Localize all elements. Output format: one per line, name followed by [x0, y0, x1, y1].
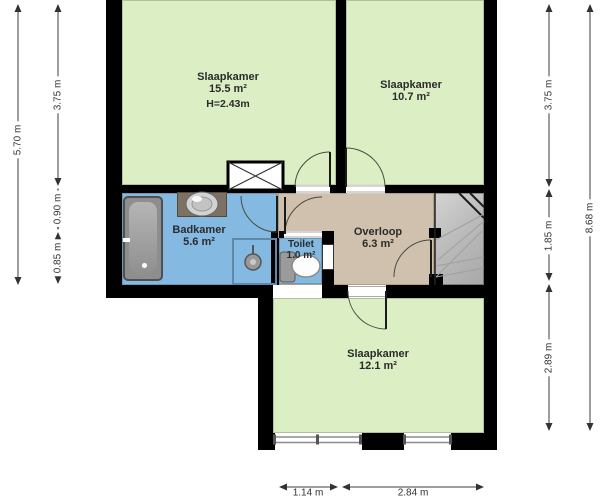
room-name: Toilet	[287, 239, 316, 250]
room-area: 12.1 m²	[347, 360, 409, 372]
shower-tray-icon	[232, 238, 277, 285]
room-area: 15.5 m²	[197, 83, 259, 95]
dim-label-bottom-2: 2.84 m	[395, 488, 432, 499]
room-label-slaapkamer-2: Slaapkamer 10.7 m²	[380, 79, 442, 103]
room-name: Badkamer	[172, 224, 225, 236]
wall-toilet-right-top	[322, 231, 334, 244]
wall-exterior-left	[106, 0, 122, 298]
wall-stair-stub-top	[429, 228, 441, 238]
dim-label-right-2: 1.85 m	[544, 218, 555, 255]
wall-bottom-pier	[362, 433, 404, 450]
room-label-toilet: Toilet 1.0 m²	[287, 239, 316, 261]
room-name: Slaapkamer	[347, 348, 409, 360]
wall-bottom-corner-left	[258, 433, 275, 450]
bathtub-faucet-icon	[123, 238, 130, 242]
room-name: Slaapkamer	[380, 79, 442, 91]
dim-label-right-3: 2.89 m	[544, 340, 555, 377]
room-area: 5.6 m²	[172, 236, 225, 248]
wall-bedroom-divider	[336, 0, 346, 185]
room-label-slaapkamer-1: Slaapkamer 15.5 m²	[197, 71, 259, 95]
toilet-niche	[322, 244, 334, 270]
room-area: 10.7 m²	[380, 91, 442, 103]
bathtub-drain-icon	[141, 262, 148, 269]
wall-hall-mid	[330, 185, 346, 193]
dim-label-right-1: 3.75 m	[544, 77, 555, 114]
staircase	[434, 193, 484, 285]
wall-bottom-corner-right	[451, 433, 497, 450]
wall-toilet-right-bottom	[322, 270, 334, 285]
room-area: 6.3 m²	[354, 238, 402, 250]
floor-plan: Slaapkamer 15.5 m² H=2.43m Slaapkamer 10…	[0, 0, 608, 500]
room-label-slaapkamer-3: Slaapkamer 12.1 m²	[347, 348, 409, 372]
dim-label-left-1: 3.75 m	[53, 77, 64, 114]
wall-bathroom-bottom	[106, 285, 273, 298]
room-label-badkamer: Badkamer 5.6 m²	[172, 224, 225, 248]
room-name: Slaapkamer	[197, 71, 259, 83]
room-height-note: H=2.43m	[206, 98, 250, 110]
dim-label-left-2: 0.90 m	[53, 191, 64, 228]
room-area: 1.0 m²	[287, 250, 316, 261]
dim-label-bottom-1: 1.14 m	[290, 488, 327, 499]
room-name: Overloop	[354, 226, 402, 238]
wall-stair-stub-bottom	[429, 274, 443, 285]
room-label-overloop: Overloop 6.3 m²	[354, 226, 402, 250]
wall-bedroom3-left	[258, 285, 273, 450]
washbasin-counter	[177, 192, 227, 217]
wall-landing-bottom-right	[386, 285, 497, 298]
dim-label-right-outer: 8.68 m	[585, 200, 596, 237]
wall-hall-right	[385, 185, 497, 193]
wall-landing-bottom-left	[322, 285, 348, 298]
dim-label-left-3: 0.85 m	[53, 240, 64, 277]
wall-toilet-top-stub	[271, 231, 284, 238]
wall-exterior-right	[484, 0, 497, 450]
dim-label-left-outer: 5.70 m	[13, 122, 24, 159]
